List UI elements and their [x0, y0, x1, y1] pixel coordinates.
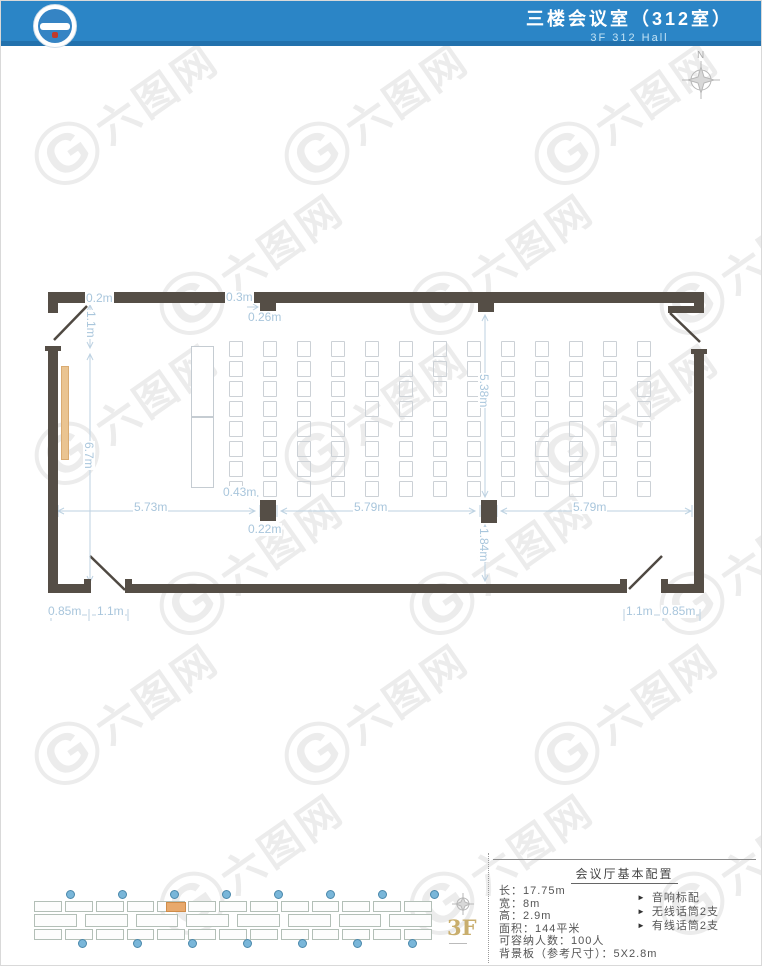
seat: [263, 361, 277, 377]
mini-room: [96, 901, 124, 912]
bullet-icon: ►: [637, 907, 646, 916]
seat: [535, 381, 549, 397]
seat: [433, 441, 447, 457]
mini-room: [281, 901, 309, 912]
mini-room: [219, 929, 247, 940]
wall-right: [694, 349, 704, 593]
seat: [501, 461, 515, 477]
seat: [603, 361, 617, 377]
mini-room: [136, 914, 179, 927]
seat: [603, 441, 617, 457]
door-jamb: [84, 579, 91, 593]
dimension-label: 0.22m: [247, 523, 282, 536]
mini-room: [96, 929, 124, 940]
mini-room: [127, 929, 155, 940]
column-bottom-1: [260, 500, 276, 521]
seat: [263, 421, 277, 437]
mini-room: [34, 914, 77, 927]
mini-room: [250, 929, 278, 940]
wall-post-top-left: [48, 292, 58, 313]
wall-bottom-left: [48, 584, 88, 593]
mini-marker: [78, 939, 87, 948]
seat: [263, 481, 277, 497]
seat: [603, 401, 617, 417]
dimension-label: 0.85m: [661, 605, 696, 618]
floor-label: 3F: [447, 915, 477, 940]
seat: [433, 341, 447, 357]
logo-seal-icon: [38, 9, 72, 43]
wall-bottom-middle: [129, 584, 624, 593]
seat: [229, 341, 243, 357]
seat: [535, 421, 549, 437]
seat: [263, 461, 277, 477]
seat: [433, 421, 447, 437]
seat: [365, 461, 379, 477]
seat: [501, 441, 515, 457]
equipment-item: ►音响标配: [637, 891, 719, 905]
seat: [603, 381, 617, 397]
seat: [297, 381, 311, 397]
seat: [569, 421, 583, 437]
seat: [569, 341, 583, 357]
seat: [467, 441, 481, 457]
seat: [569, 461, 583, 477]
seat: [501, 421, 515, 437]
wall-cap-left-top: [45, 346, 61, 351]
spec-item: 高：2.9m: [499, 910, 657, 923]
seat: [501, 361, 515, 377]
seat: [433, 361, 447, 377]
seat: [229, 361, 243, 377]
seat: [229, 441, 243, 457]
mini-room: [188, 901, 216, 912]
seat: [229, 401, 243, 417]
seat: [399, 381, 413, 397]
bullet-icon: ►: [637, 921, 646, 930]
dimension-label: 0.43m: [222, 486, 257, 499]
seat: [467, 461, 481, 477]
seat: [501, 381, 515, 397]
seat: [263, 401, 277, 417]
mini-room: [34, 929, 62, 940]
seat: [603, 461, 617, 477]
seat: [569, 361, 583, 377]
seat: [637, 441, 651, 457]
dimension-label: 5.79m: [572, 501, 607, 514]
seat: [365, 421, 379, 437]
equipment-item: ►有线话筒2支: [637, 919, 719, 933]
page-title: 三楼会议室（312室）: [526, 5, 733, 31]
seat: [433, 461, 447, 477]
mini-marker: [118, 890, 127, 899]
seat: [569, 401, 583, 417]
dimension-label: 6.7m: [83, 441, 95, 470]
seat: [501, 481, 515, 497]
dimension-label: 0.3m: [225, 291, 254, 304]
page-subtitle: 3F 312 Hall: [526, 32, 733, 44]
seat: [229, 421, 243, 437]
mini-room: [34, 901, 62, 912]
seat: [365, 481, 379, 497]
mini-room: [312, 901, 340, 912]
spec-item: 可容纳人数：100人: [499, 935, 657, 948]
seat: [399, 421, 413, 437]
seat: [297, 461, 311, 477]
seat: [637, 381, 651, 397]
seat: [365, 401, 379, 417]
seat: [263, 381, 277, 397]
mini-room: [157, 929, 185, 940]
floor-label-underline: [449, 943, 467, 944]
bullet-icon: ►: [637, 893, 646, 902]
dimension-label: 1.1m: [85, 310, 97, 339]
stage-table-lower: [191, 417, 214, 488]
seat: [535, 361, 549, 377]
seat: [535, 441, 549, 457]
seat: [399, 401, 413, 417]
seat: [331, 401, 345, 417]
info-panel-separator: [488, 853, 489, 963]
seat: [637, 361, 651, 377]
mini-room: [65, 929, 93, 940]
seat: [331, 421, 345, 437]
mini-marker: [66, 890, 75, 899]
mini-marker: [430, 890, 439, 899]
mini-room: [237, 914, 280, 927]
seat: [433, 381, 447, 397]
backdrop-board: [61, 366, 69, 460]
seat: [263, 341, 277, 357]
seat: [365, 341, 379, 357]
dimension-label: 5.73m: [133, 501, 168, 514]
seat: [501, 401, 515, 417]
mini-marker: [326, 890, 335, 899]
mini-room: [85, 914, 128, 927]
mini-marker: [133, 939, 142, 948]
seat: [331, 441, 345, 457]
seat: [399, 481, 413, 497]
seat: [535, 401, 549, 417]
seat: [297, 441, 311, 457]
wall-bottom-right: [664, 584, 704, 593]
seat: [501, 341, 515, 357]
seat: [297, 361, 311, 377]
mini-room: [186, 914, 229, 927]
seat: [331, 341, 345, 357]
equipment-item: ►无线话筒2支: [637, 905, 719, 919]
dimension-label: 0.2m: [85, 292, 114, 305]
wall-cap-right-top: [691, 349, 707, 354]
spec-list: 长：17.75m宽：8m高：2.9m面积：144平米可容纳人数：100人背景板（…: [499, 885, 657, 961]
mini-room: [288, 914, 331, 927]
seat: [433, 481, 447, 497]
mini-room: [312, 929, 340, 940]
mini-marker: [170, 890, 179, 899]
mini-room: [250, 901, 278, 912]
dimension-label: 5.38m: [478, 373, 490, 408]
seat: [467, 481, 481, 497]
page: G六图网G六图网G六图网G六图网G六图网G六图网G六图网G六图网G六图网G六图网…: [0, 0, 762, 966]
door-jamb: [125, 579, 132, 593]
seat: [637, 461, 651, 477]
header-titles: 三楼会议室（312室） 3F 312 Hall: [526, 5, 733, 44]
seat: [331, 461, 345, 477]
mini-room: [389, 914, 432, 927]
seat: [365, 361, 379, 377]
mini-marker: [378, 890, 387, 899]
dimension-label: 1.84m: [478, 527, 490, 562]
org-logo-badge: [33, 4, 77, 48]
seat: [331, 381, 345, 397]
door-jamb: [661, 579, 668, 593]
seat: [229, 461, 243, 477]
seat: [637, 341, 651, 357]
seat: [603, 341, 617, 357]
mini-room: [404, 901, 432, 912]
spec-item: 背景板（参考尺寸）：5X2.8m: [499, 948, 657, 961]
door-jamb: [620, 579, 627, 593]
seat: [569, 481, 583, 497]
stage-table-upper: [191, 346, 214, 417]
dimension-label: 0.26m: [247, 311, 282, 324]
seat: [399, 461, 413, 477]
dimension-label: 0.85m: [47, 605, 82, 618]
seat: [535, 341, 549, 357]
dimension-label: 1.1m: [625, 605, 654, 618]
seat: [365, 441, 379, 457]
mini-room: [404, 929, 432, 940]
seat: [399, 361, 413, 377]
mini-marker: [243, 939, 252, 948]
seat: [603, 421, 617, 437]
seat: [331, 361, 345, 377]
mini-marker: [408, 939, 417, 948]
info-panel-divider: [493, 859, 756, 860]
seat: [399, 441, 413, 457]
mini-room: [342, 901, 370, 912]
spec-item: 宽：8m: [499, 898, 657, 911]
seat: [569, 441, 583, 457]
mini-room: [339, 914, 382, 927]
seat: [365, 381, 379, 397]
seat: [467, 421, 481, 437]
seat: [297, 401, 311, 417]
seat: [229, 381, 243, 397]
seat: [535, 481, 549, 497]
mini-room: [127, 901, 155, 912]
seat: [569, 381, 583, 397]
seat: [331, 481, 345, 497]
seat: [297, 421, 311, 437]
seat: [297, 481, 311, 497]
mini-marker: [222, 890, 231, 899]
mini-room: [373, 901, 401, 912]
info-panel-title: 会议厅基本配置: [493, 865, 756, 883]
wall-left: [48, 346, 58, 593]
seat: [399, 341, 413, 357]
equipment-list: ►音响标配►无线话筒2支►有线话筒2支: [637, 891, 719, 933]
mini-marker: [298, 939, 307, 948]
mini-room-highlight: [166, 902, 186, 912]
mini-room: [281, 929, 309, 940]
mini-room: [373, 929, 401, 940]
seat: [637, 481, 651, 497]
mini-floor-plan: [16, 889, 446, 949]
floor-plan: 0.2m1.1m0.3m0.26m5.38m6.7m5.73m0.43m5.79…: [1, 1, 761, 965]
column-top-2: [478, 297, 494, 312]
seat: [535, 461, 549, 477]
dimension-label: 5.79m: [353, 501, 388, 514]
seat: [467, 341, 481, 357]
mini-marker: [188, 939, 197, 948]
wall-stub-top-right: [668, 306, 704, 313]
mini-room: [65, 901, 93, 912]
spec-item: 长：17.75m: [499, 885, 657, 898]
column-bottom-2: [481, 500, 497, 523]
wall-top: [48, 292, 704, 303]
seat: [263, 441, 277, 457]
seat: [603, 481, 617, 497]
seat: [637, 421, 651, 437]
mini-room: [219, 901, 247, 912]
seat: [637, 401, 651, 417]
seat: [433, 401, 447, 417]
mini-marker: [274, 890, 283, 899]
spec-item: 面积：144平米: [499, 923, 657, 936]
mini-marker: [353, 939, 362, 948]
seat: [297, 341, 311, 357]
dimension-label: 1.1m: [96, 605, 125, 618]
